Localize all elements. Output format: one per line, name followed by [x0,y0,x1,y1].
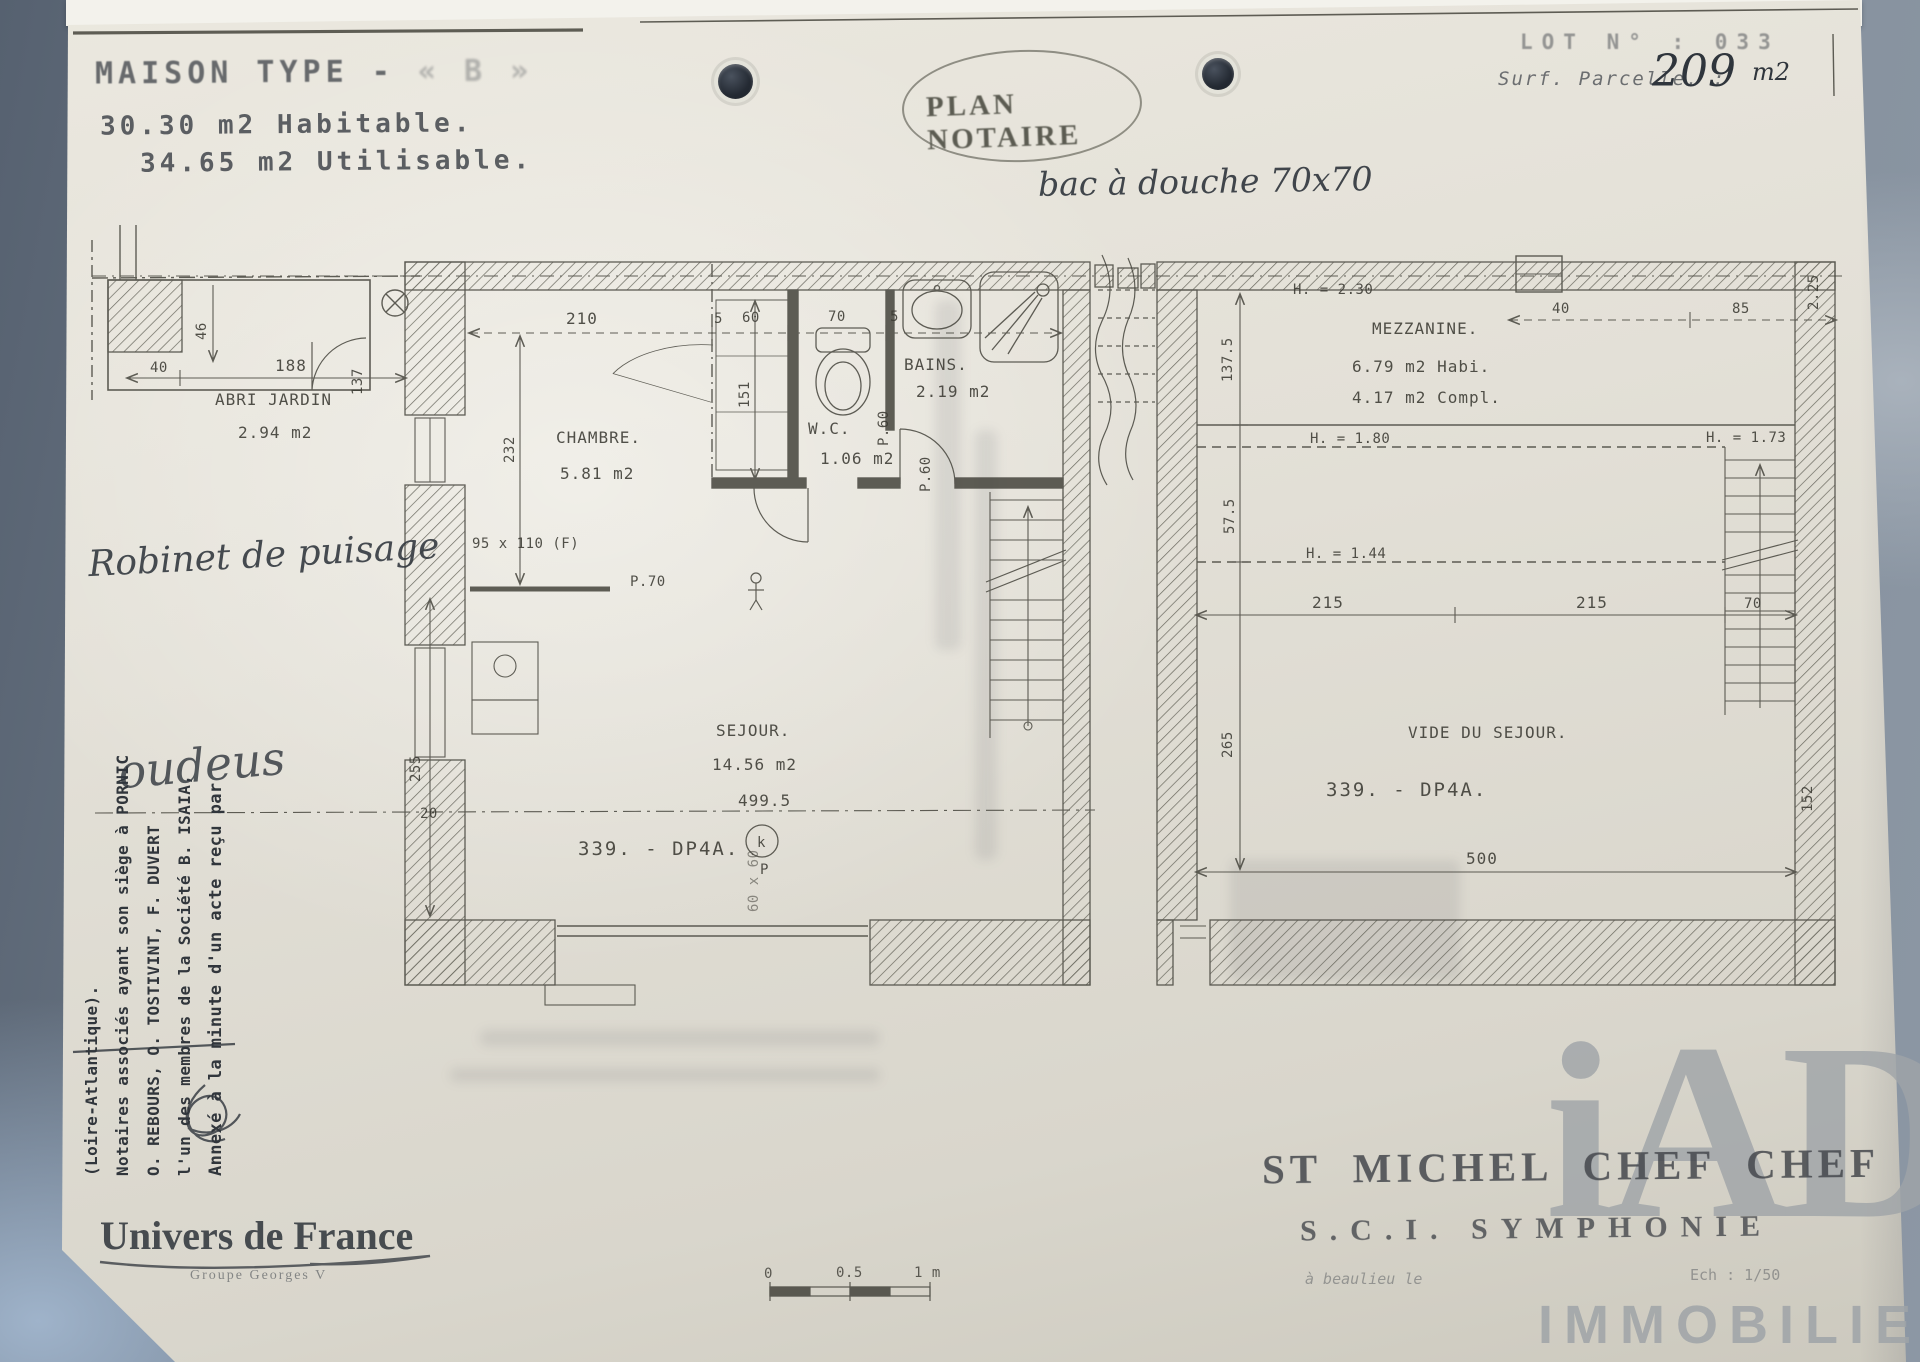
dim-20: 20 [420,806,438,822]
dim-85-mz: 85 [1732,301,1750,317]
orientation-symbol [382,290,408,316]
gf-staircase [986,492,1066,738]
toilet-icon [816,328,870,415]
mezzanine-area-1: 6.79 m2 Habi. [1352,357,1490,376]
room-label-wc: W.C. [808,419,851,438]
height-230: H. = 2.30 [1293,282,1373,298]
footer-small-left: à beaulieu le [1305,1270,1422,1288]
dim-60x60: 60 x 60 [746,849,762,912]
dim-265: 265 [1220,731,1236,758]
iad-immobilier-watermark: IMMOBILIER [1538,1298,1920,1352]
margin-note-line-3: O. REBOURS, O. TOSTIVINT, F. DUVERT [144,825,163,1176]
dim-5a: 5 [714,311,723,327]
dim-137: 137 [350,368,366,395]
mz-dimension-lines [1197,295,1835,872]
margin-note-line-2: l'un des membres de la Société B. ISAIA, [175,775,194,1176]
dim-500: 500 [1466,849,1498,868]
room-label-mezzanine: MEZZANINE. [1372,319,1478,338]
letterhead-name: Univers de France [100,1212,413,1259]
height-173: H. = 1.73 [1706,430,1786,446]
door-p60b: P.60 [918,456,934,492]
room-area-bains: 2.19 m2 [916,382,990,401]
door-p60a: P.60 [876,410,892,446]
scale-zero: 0 [764,1266,773,1282]
city-stamp: ST MICHEL CHEF CHEF [1262,1139,1880,1193]
margin-note-line-1: Annexé à la minute d'un acte reçu par [206,783,226,1177]
mz-section-cut [1095,255,1155,485]
margin-note-line-4: Notaires associés ayant son siège à PORN… [113,755,132,1176]
plan-linework [73,9,1858,1005]
dim-151: 151 [737,381,753,408]
dim-60: 60 [742,310,760,326]
dim-46: 46 [194,322,210,340]
mz-staircase [1722,447,1798,715]
scale-bar [770,1282,930,1301]
room-area-abri: 2.94 m2 [238,423,312,442]
room-label-sejour: SEJOUR. [716,721,790,740]
dim-255: 255 [408,755,424,782]
dim-210: 210 [566,309,598,328]
room-area-sejour: 14.56 m2 [712,755,797,774]
scale-bar-labels: 0 0.5 1 m [764,1265,941,1282]
dim-5b: 5 [890,309,899,325]
mz-walls [1157,262,1835,985]
window-size-label: 95 x 110 (F) [472,536,579,552]
dim-215b: 215 [1576,593,1608,612]
room-area-chambre: 5.81 m2 [560,464,634,483]
kitchen-unit-icon [472,642,538,734]
dim-152: 152 [1800,785,1816,812]
mz-labels: MEZZANINE. 6.79 m2 Habi. 4.17 m2 Compl. … [1220,274,1822,868]
mz-plan-reference: 339. - DP4A. [1326,779,1487,801]
room-label-abri: ABRI JARDIN [215,390,332,409]
door-p70: P.70 [630,574,666,590]
margin-note-line-5: (Loire-Atlantique). [82,985,101,1176]
gf-walls [108,262,1155,985]
footer-small-right: Ech : 1/50 [1690,1266,1780,1284]
height-144: H. = 1.44 [1306,546,1386,562]
letterhead-subtitle: Groupe Georges V [190,1268,327,1284]
height-180: H. = 1.80 [1310,431,1390,447]
dim-4995: 499.5 [738,791,791,810]
scale-one-meter: 1 m [914,1265,941,1281]
gf-plan-reference: 339. - DP4A. [578,838,739,860]
company-stamp: S.C.I. SYMPHONIE [1300,1210,1773,1249]
mezzanine-area-2: 4.17 m2 Compl. [1352,388,1501,407]
room-label-vide: VIDE DU SEJOUR. [1408,723,1568,742]
dim-70-mz: 70 [1744,596,1762,612]
scale-figure-icon [748,573,764,610]
room-label-chambre: CHAMBRE. [556,428,641,447]
gf-labels: ABRI JARDIN 2.94 m2 CHAMBRE. 5.81 m2 W.C… [150,309,990,912]
dim-232: 232 [502,436,518,463]
room-label-bains: BAINS. [904,355,968,374]
dim-70: 70 [828,309,846,325]
dim-1375: 137.5 [1220,337,1236,382]
dim-575: 57.5 [1222,498,1238,534]
dim-40: 40 [150,360,168,376]
room-area-wc: 1.06 m2 [820,449,894,468]
gf-dimension-lines [95,285,1095,915]
photo-of-document: MAISON TYPE - « B » 30.30 m2 Habitable. … [0,0,1920,1362]
scale-half: 0.5 [836,1265,863,1281]
dim-40-mz: 40 [1552,301,1570,317]
dim-225: 2.25 [1806,274,1822,310]
stove-symbol-letter: k [757,835,766,851]
dim-215a: 215 [1312,593,1344,612]
dim-188: 188 [275,356,307,375]
